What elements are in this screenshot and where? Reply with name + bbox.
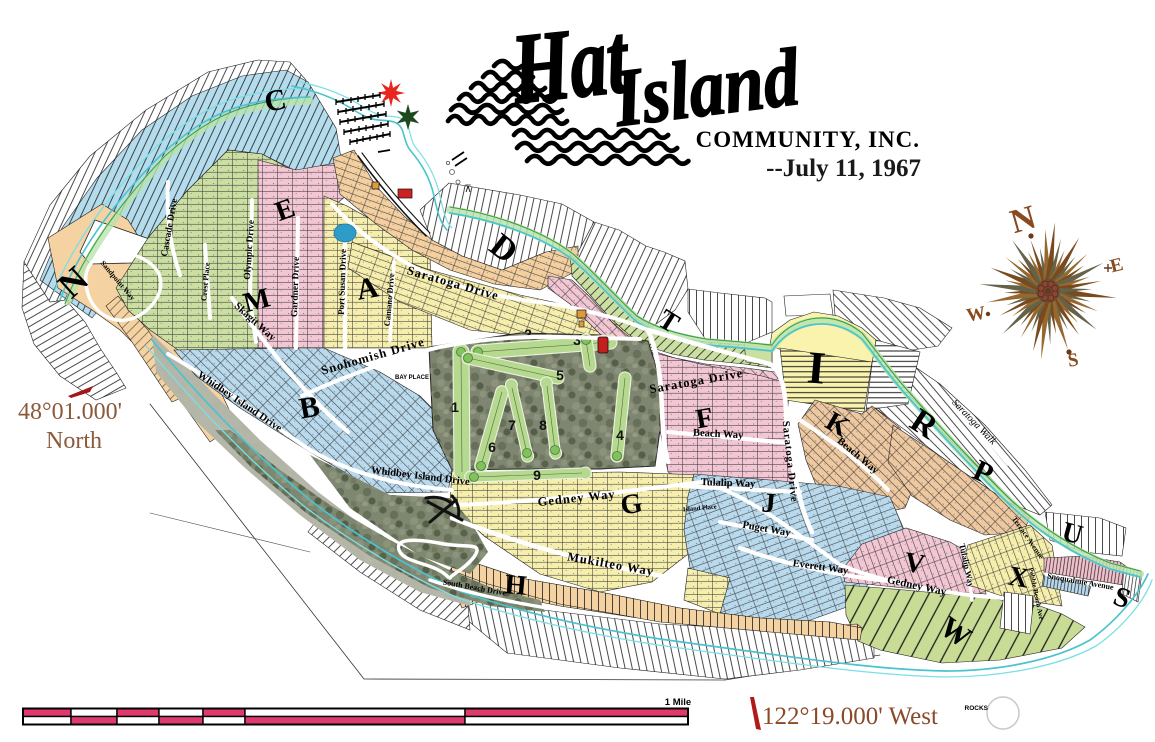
svg-text:7: 7 bbox=[508, 417, 516, 433]
svg-text:BAY PLACE: BAY PLACE bbox=[395, 375, 429, 381]
svg-text:4: 4 bbox=[616, 427, 624, 443]
svg-text:5: 5 bbox=[556, 367, 564, 383]
svg-text:⊼: ⊼ bbox=[464, 184, 471, 195]
svg-text:H: H bbox=[504, 569, 529, 602]
svg-text:6: 6 bbox=[488, 439, 496, 455]
svg-text:--July 11, 1967: --July 11, 1967 bbox=[766, 155, 921, 182]
svg-text:W: W bbox=[965, 303, 987, 327]
svg-text:8: 8 bbox=[539, 417, 547, 433]
svg-text:9: 9 bbox=[533, 467, 541, 483]
svg-text:North: North bbox=[46, 428, 102, 454]
svg-text:2: 2 bbox=[524, 326, 532, 342]
svg-text:ROCKS: ROCKS bbox=[965, 705, 989, 712]
svg-text:Tulalip Way: Tulalip Way bbox=[701, 477, 757, 490]
svg-text:122°19.000' West: 122°19.000' West bbox=[762, 703, 938, 730]
svg-text:1: 1 bbox=[451, 399, 459, 415]
svg-text:3: 3 bbox=[573, 332, 581, 348]
svg-text:48°01.000': 48°01.000' bbox=[18, 399, 122, 425]
svg-text:Gardner Drive: Gardner Drive bbox=[290, 257, 302, 318]
svg-text:J: J bbox=[760, 487, 777, 519]
svg-text:COMMUNITY, INC.: COMMUNITY, INC. bbox=[696, 127, 920, 152]
svg-text:1 Mile: 1 Mile bbox=[665, 697, 691, 708]
